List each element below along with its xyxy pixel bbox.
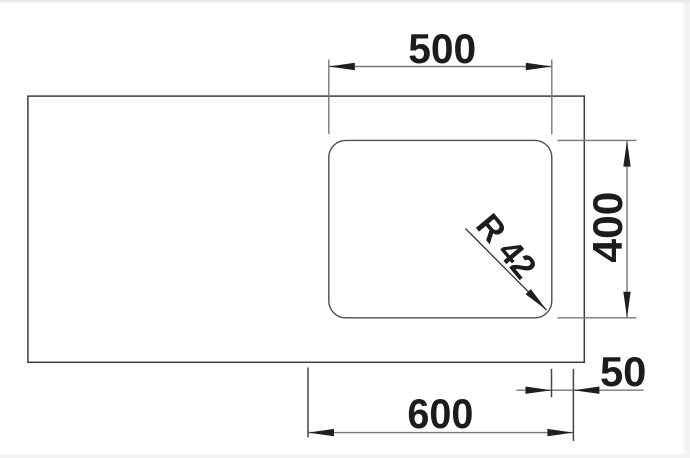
svg-text:500: 500 <box>408 25 476 72</box>
svg-text:600: 600 <box>407 390 473 437</box>
svg-text:400: 400 <box>584 192 631 263</box>
svg-text:50: 50 <box>600 348 647 395</box>
